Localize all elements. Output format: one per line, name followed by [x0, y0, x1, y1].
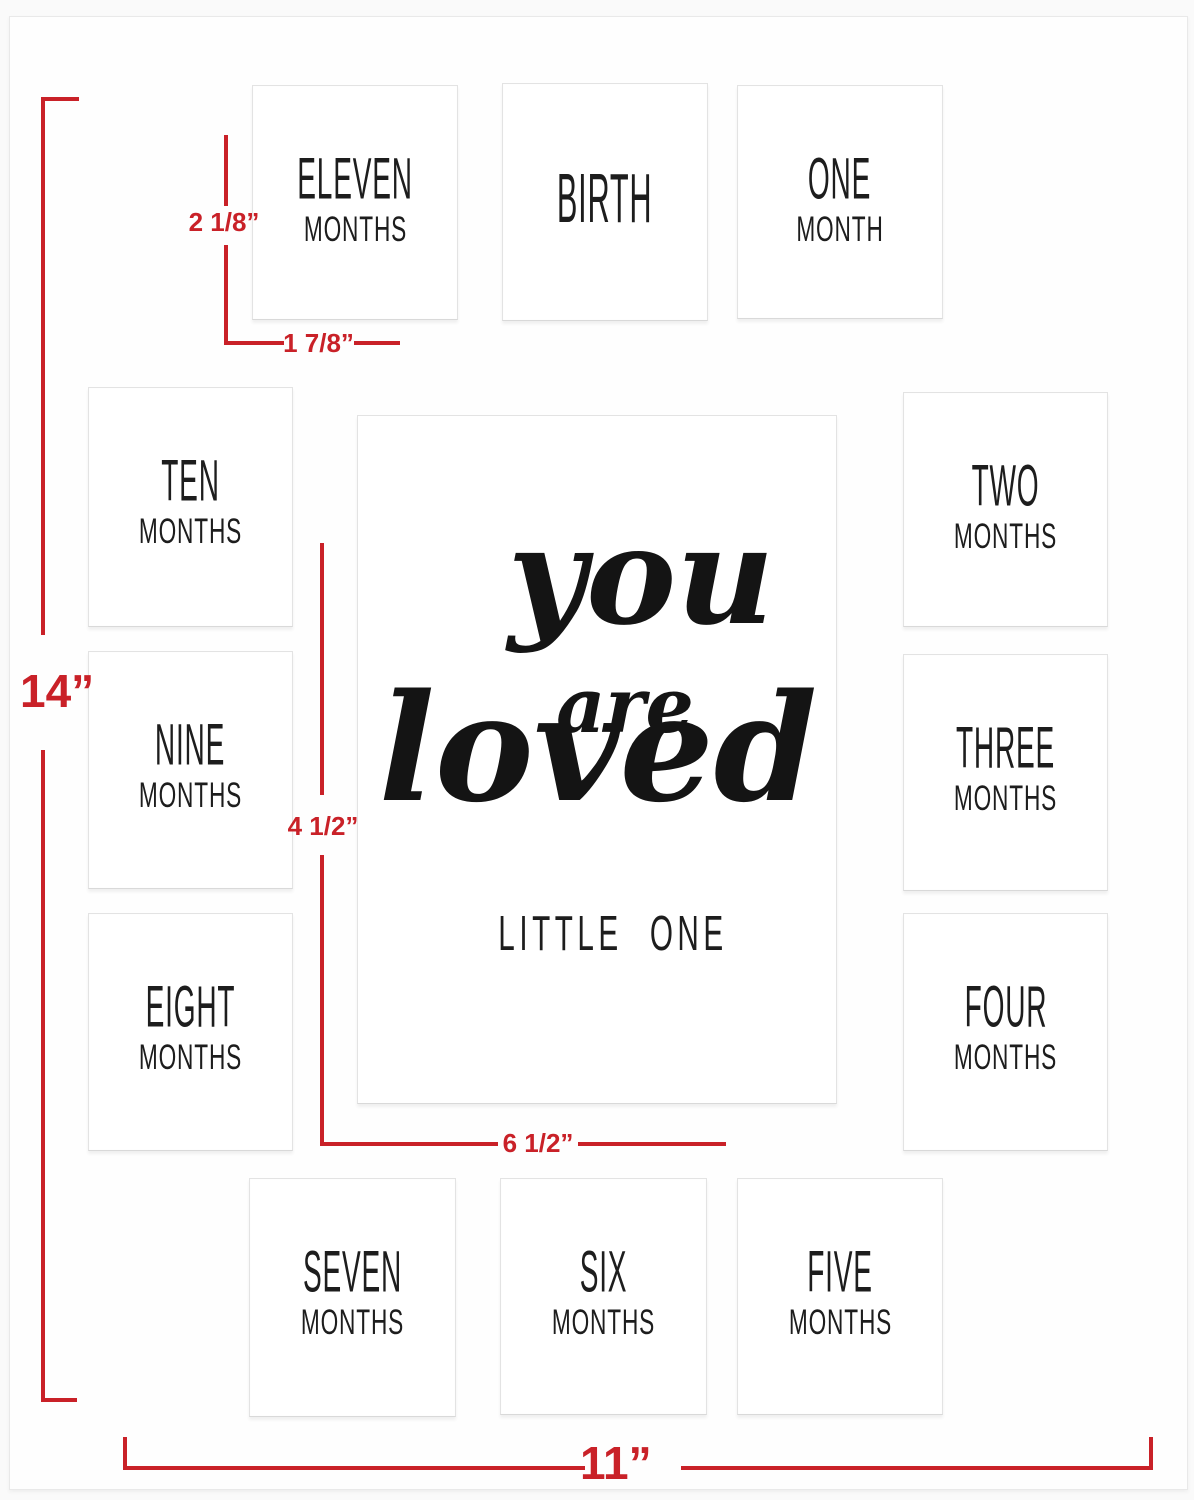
opening-label-line2: MONTHS: [139, 778, 242, 814]
opening-height-dimension-label: 2 1/8”: [178, 209, 270, 235]
mat-height-dimension-line-lower: [41, 750, 45, 1402]
opening-label-line2: MONTHS: [954, 1040, 1057, 1076]
opening-label-line1: THREE: [956, 719, 1055, 777]
opening-height-dimension-line-upper: [224, 135, 228, 206]
photo-opening-two: TWOMONTHS: [903, 392, 1108, 627]
opening-label-line1: SEVEN: [303, 1243, 402, 1301]
mat-height-dimension-label: 14”: [20, 668, 82, 714]
mat-height-dimension-tick-top: [41, 97, 79, 101]
photo-opening-eleven: ELEVENMONTHS: [252, 85, 458, 320]
opening-label-line2: MONTHS: [954, 781, 1057, 817]
center-dimension-vertical-line-lower: [320, 855, 324, 1146]
mat-width-dimension-line-right: [681, 1466, 1153, 1470]
photo-opening-seven: SEVENMONTHS: [249, 1178, 456, 1417]
opening-width-dimension-line-right: [354, 341, 400, 345]
opening-label-line1: FOUR: [964, 978, 1047, 1036]
opening-height-dimension-line-lower: [224, 245, 228, 345]
opening-label-line1: ONE: [808, 150, 871, 208]
center-dimension-vertical-line-upper: [320, 543, 324, 795]
opening-label-line2: MONTH: [796, 212, 883, 248]
opening-label-line1: EIGHT: [146, 978, 236, 1036]
mat-width-dimension-tick-right: [1149, 1437, 1153, 1470]
center-dimension-vertical-label: 4 1/2”: [286, 813, 360, 839]
mat-width-dimension-label: 11”: [580, 1440, 644, 1486]
photo-opening-eight: EIGHTMONTHS: [88, 913, 293, 1151]
photo-opening-one: ONEMONTH: [737, 85, 943, 319]
photo-opening-six: SIXMONTHS: [500, 1178, 707, 1415]
center-dimension-horizontal-line-left: [320, 1142, 498, 1146]
opening-label-line2: MONTHS: [303, 212, 406, 248]
center-dimension-horizontal-label: 6 1/2”: [497, 1130, 579, 1156]
photo-opening-three: THREEMONTHS: [903, 654, 1108, 891]
center-art-opening: you are loved LITTLE ONE: [357, 415, 837, 1104]
opening-label-line2: MONTHS: [301, 1305, 404, 1341]
mat-width-dimension-line-left: [123, 1466, 585, 1470]
opening-label-line1: FIVE: [807, 1243, 873, 1301]
opening-label-line2: MONTHS: [552, 1305, 655, 1341]
center-dimension-horizontal-line-right: [578, 1142, 726, 1146]
center-art-subtitle: LITTLE ONE: [498, 908, 727, 958]
mat-height-dimension-line-upper: [41, 97, 45, 635]
center-art-word-loved: loved: [379, 674, 818, 822]
photo-opening-nine: NINEMONTHS: [88, 651, 293, 889]
opening-label-line2: MONTHS: [139, 1040, 242, 1076]
opening-label-line1: BIRTH: [557, 164, 652, 234]
opening-width-dimension-line-left: [224, 341, 284, 345]
opening-label-line2: MONTHS: [788, 1305, 891, 1341]
photo-opening-ten: TENMONTHS: [88, 387, 293, 627]
opening-label-line1: SIX: [580, 1243, 628, 1301]
photo-opening-five: FIVEMONTHS: [737, 1178, 943, 1415]
opening-label-line1: NINE: [155, 716, 225, 774]
opening-label-line2: MONTHS: [954, 519, 1057, 555]
opening-label-line2: MONTHS: [139, 514, 242, 550]
opening-label-line1: TWO: [972, 457, 1040, 515]
center-art-word-you: you: [508, 508, 775, 643]
mat-height-dimension-tick-bottom: [41, 1398, 77, 1402]
photo-opening-four: FOURMONTHS: [903, 913, 1108, 1151]
opening-label-line1: TEN: [161, 452, 220, 510]
opening-width-dimension-label: 1 7/8”: [283, 330, 354, 356]
opening-label-line1: ELEVEN: [297, 150, 413, 208]
photo-opening-birth: BIRTH: [502, 83, 708, 321]
